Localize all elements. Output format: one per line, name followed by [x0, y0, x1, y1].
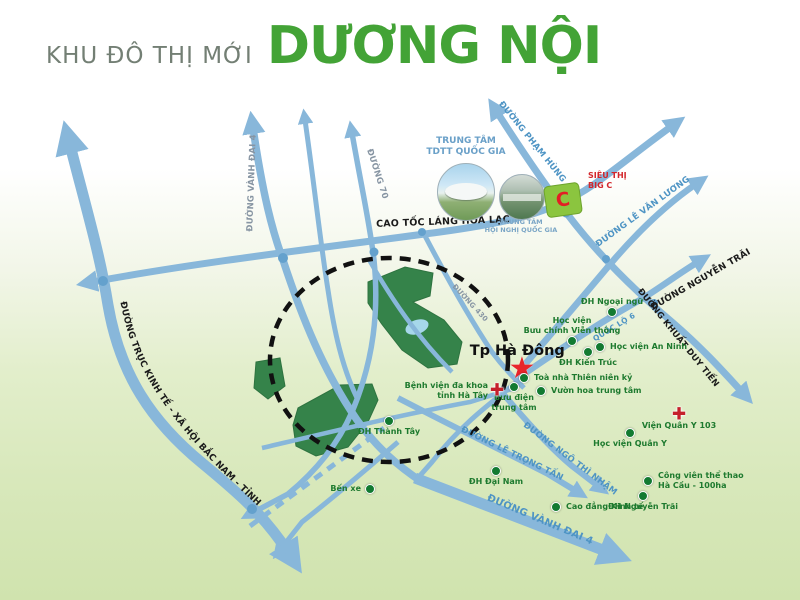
- poi-label-dh-thanh-tay: ĐH Thành Tây: [358, 427, 420, 437]
- poi-label-cong-vien-the-thao: Công viên thể thaoHà Cầu - 100ha: [658, 471, 744, 491]
- stadium-photo: [437, 163, 495, 221]
- road-label-truc-kinh-te: ĐƯỜNG TRỤC KINH TẾ - XÃ HỘI BẮC NAM - TỈ…: [0, 0, 265, 511]
- map: ĐƯỜNG TRỤC KINH TẾ - XÃ HỘI BẮC NAM - TỈ…: [0, 0, 800, 600]
- bigc-letter: C: [555, 190, 571, 211]
- dot-marker-icon: [567, 336, 577, 346]
- dot-marker-icon: [509, 382, 519, 392]
- poi-label-tp-ha-dong: Tp Hà Đông: [470, 342, 565, 360]
- dot-marker-icon: [638, 491, 648, 501]
- dot-marker-icon: [583, 347, 593, 357]
- convention-center-photo: [499, 174, 545, 220]
- road-minor-north: [305, 120, 358, 400]
- stadium-label: TRUNG TÂM TDTT QUỐC GIA: [420, 136, 512, 159]
- poi-label-dh-nguyen-trai: ĐH Nguyễn Trãi: [608, 502, 678, 512]
- bigc-logo-icon: C: [543, 182, 583, 219]
- convention-label: TRUNG TÂM HỘI NGHỊ QUỐC GIA: [479, 218, 563, 234]
- map-title: KHU ĐÔ THỊ MỚI DƯƠNG NỘI: [46, 16, 601, 76]
- dot-marker-icon: [551, 502, 561, 512]
- convention-label-line2: HỘI NGHỊ QUỐC GIA: [479, 226, 563, 234]
- stadium-label-line1: TRUNG TÂM: [420, 136, 512, 147]
- poi-label-dh-kien-truc: ĐH Kiến Trúc: [559, 358, 617, 368]
- poi-label-dh-ngoai-ngu: ĐH Ngoại ngữ: [581, 297, 643, 307]
- bigc-label-line1: SIÊU THỊ: [588, 171, 627, 181]
- poi-label-benh-vien-ha-tay: Bệnh viện đa khoatỉnh Hà Tây: [405, 381, 488, 401]
- dot-marker-icon: [491, 466, 501, 476]
- dot-marker-icon: [384, 416, 394, 426]
- dot-marker-icon: [519, 373, 529, 383]
- stadium-label-line2: TDTT QUỐC GIA: [420, 147, 512, 158]
- dot-marker-icon: [365, 484, 375, 494]
- poi-label-toa-nha-thien-nien-ky: Toà nhà Thiên niên kỷ: [534, 373, 632, 383]
- poi-label-ben-xe: Bến xe: [330, 484, 361, 494]
- road-sw-branch: [280, 442, 398, 550]
- dot-marker-icon: [595, 342, 605, 352]
- poi-label-dh-dai-nam: ĐH Đại Nam: [469, 477, 523, 487]
- title-name: DƯƠNG NỘI: [267, 16, 601, 76]
- poi-label-vuon-hoa-trung-tam: Vườn hoa trung tâm: [551, 386, 641, 396]
- dot-marker-icon: [643, 476, 653, 486]
- poi-label-vien-quan-y-103: Viện Quân Y 103: [642, 421, 716, 431]
- map-canvas: ĐƯỜNG TRỤC KINH TẾ - XÃ HỘI BẮC NAM - TỈ…: [0, 0, 800, 600]
- poi-label-hoc-vien-quan-y: Học viện Quân Y: [593, 439, 667, 449]
- poi-label-hv-an-ninh: Học viện An Ninh: [610, 342, 687, 352]
- convention-label-line1: TRUNG TÂM: [479, 218, 563, 226]
- dot-marker-icon: [536, 386, 546, 396]
- cross-marker-icon: ✚: [490, 383, 504, 400]
- convention-band-icon: [503, 194, 542, 200]
- bigc-label-line2: BIG C: [588, 181, 627, 191]
- poi-label-hv-buu-chinh: Học việnBưu chính Viễn thông: [524, 316, 621, 336]
- stadium-roof-icon: [445, 183, 488, 200]
- title-prefix: KHU ĐÔ THỊ MỚI: [46, 43, 253, 69]
- dot-marker-icon: [625, 428, 635, 438]
- bigc-label: SIÊU THỊ BIG C: [588, 171, 627, 191]
